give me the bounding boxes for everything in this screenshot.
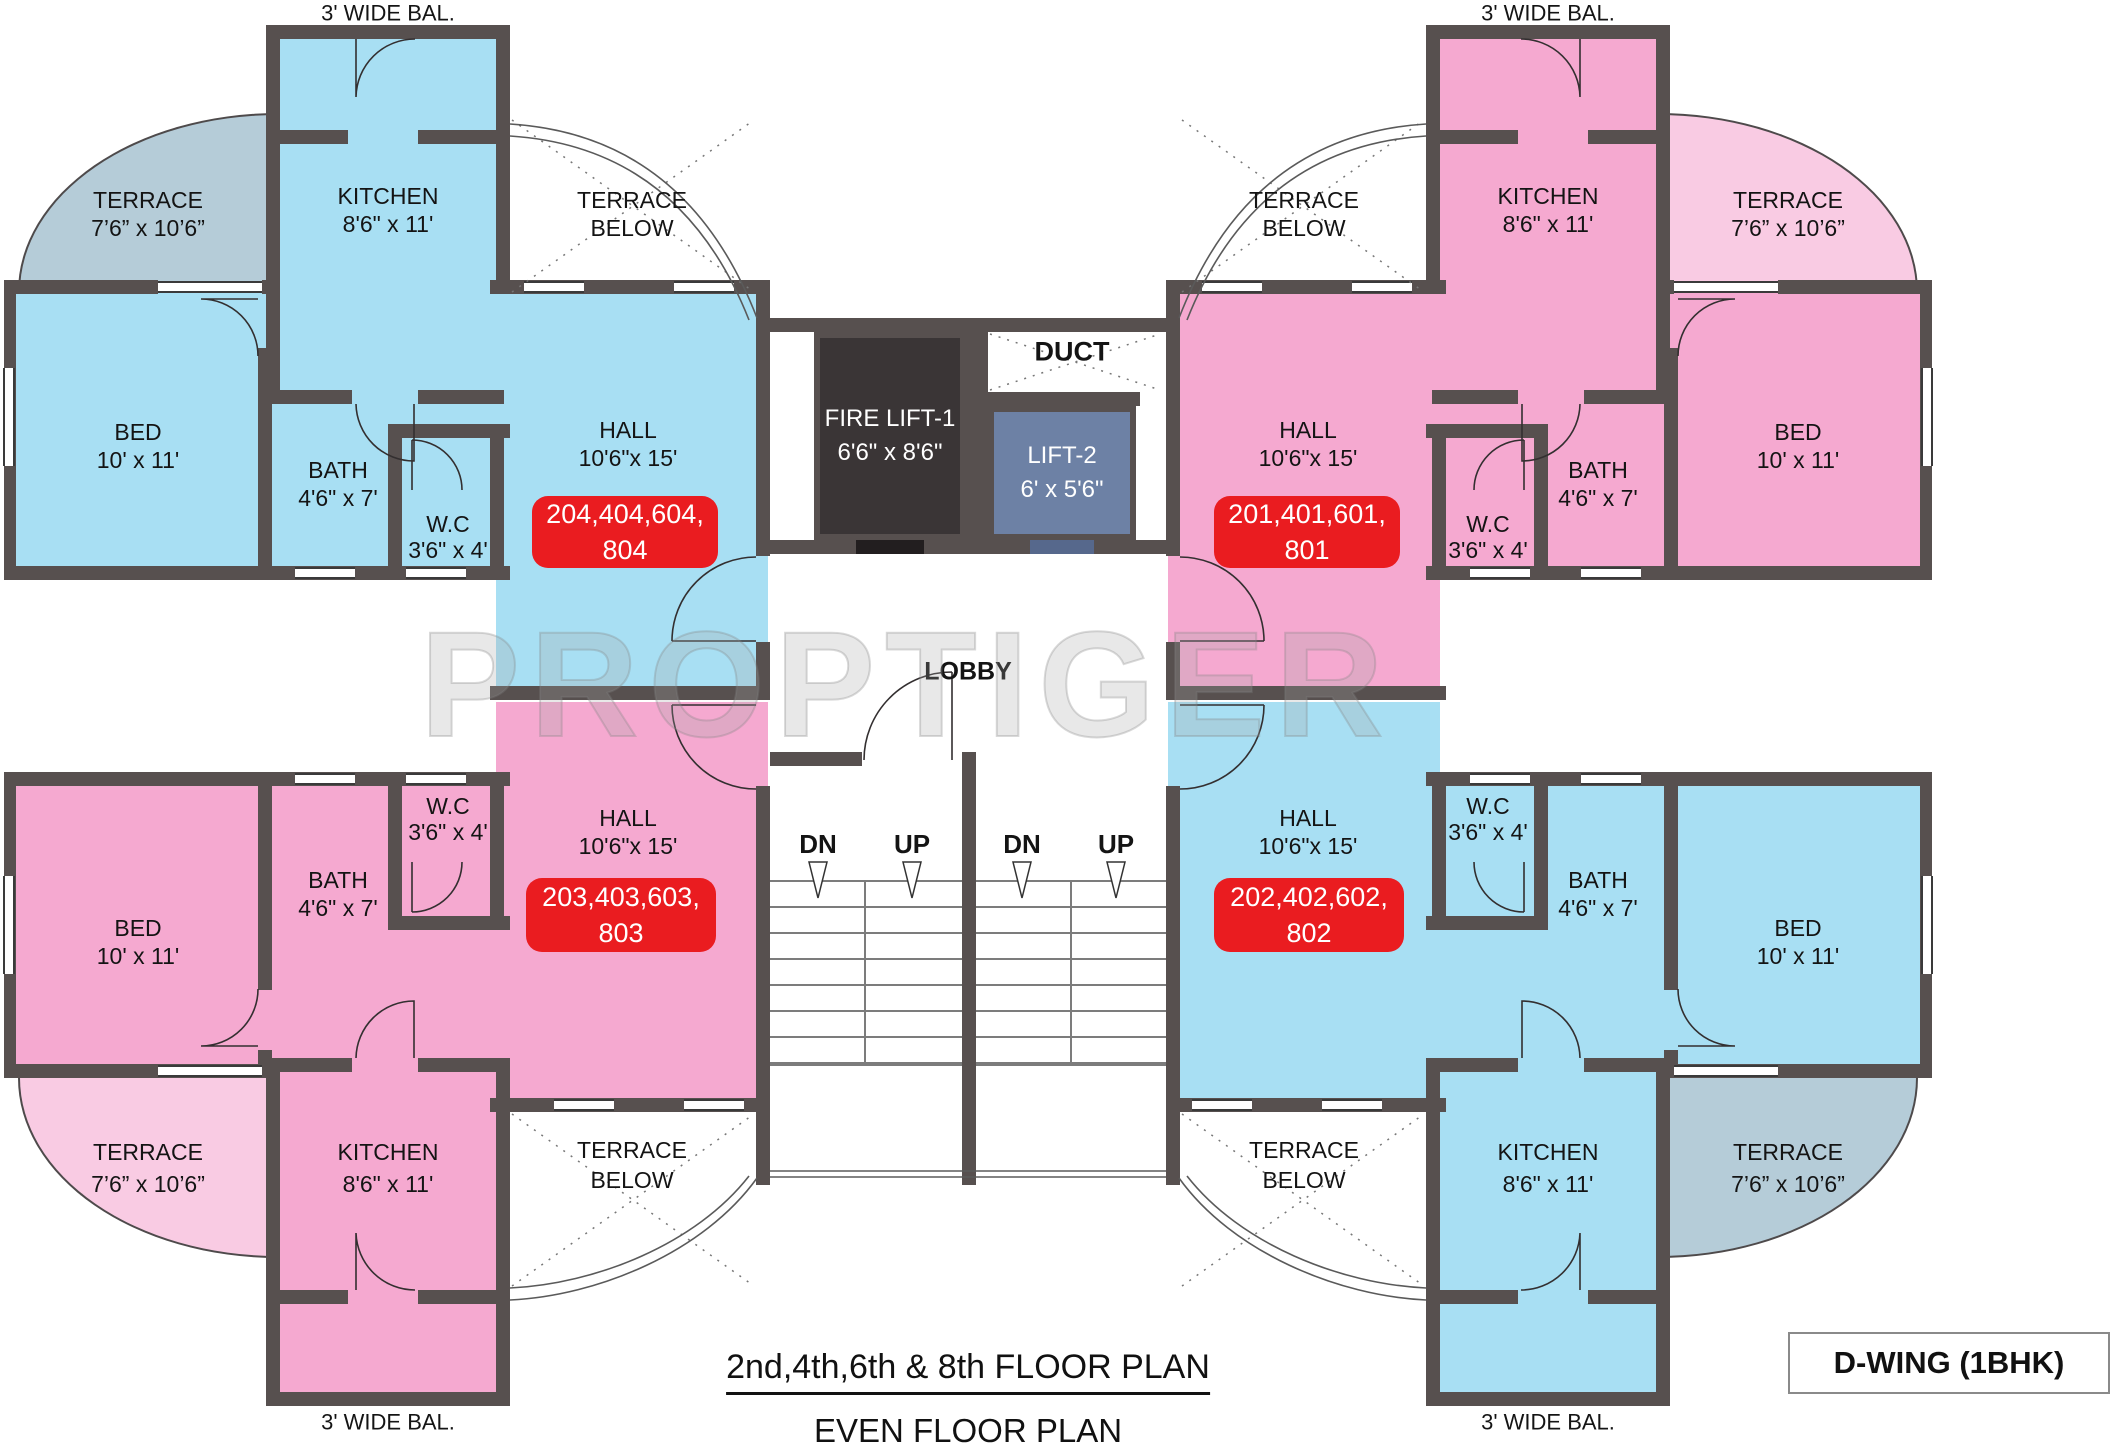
room-dim-bed: 10' x 11'	[97, 447, 180, 473]
window	[1322, 1099, 1382, 1111]
room-label-bed: BED	[114, 419, 161, 445]
unit-badge-line: 803	[598, 915, 643, 951]
window	[1470, 773, 1530, 785]
wall	[258, 786, 272, 990]
wall	[1426, 1290, 1518, 1304]
wall	[962, 752, 976, 1185]
room-label-hall: HALL	[599, 805, 657, 831]
room-dim-terrace: 7’6” x 10’6”	[91, 1171, 205, 1197]
fire-lift-door	[856, 540, 924, 554]
even-floor-plan-caption: EVEN FLOOR PLAN	[814, 1412, 1122, 1448]
room-dim-bath: 4'6" x 7'	[1558, 485, 1638, 511]
window	[3, 876, 15, 974]
room-label-kitchen: KITCHEN	[338, 183, 439, 209]
lobby-label: LOBBY	[924, 658, 1012, 687]
stair-up-label: UP	[1098, 830, 1134, 860]
room-label-terrace: TERRACE	[1733, 1139, 1843, 1165]
room-label-terrace: TERRACE	[93, 1139, 203, 1165]
room-label-hall: HALL	[599, 417, 657, 443]
room-dim-bed: 10' x 11'	[1757, 943, 1840, 969]
unit-badge-line: 804	[602, 532, 647, 568]
window	[1470, 567, 1530, 579]
wall	[266, 1392, 510, 1406]
window	[158, 1065, 262, 1077]
wall	[258, 348, 272, 570]
room-dim-terrace: 7’6” x 10’6”	[91, 215, 205, 241]
unit-201-hall-fill	[1168, 282, 1440, 698]
terrace-below-label: TERRACE	[577, 187, 687, 213]
room-dim-kitchen: 8'6" x 11'	[343, 211, 434, 237]
window	[1192, 1099, 1252, 1111]
wall	[1778, 280, 1932, 294]
balcony-label: 3' WIDE BAL.	[321, 1409, 455, 1434]
wall	[1584, 1058, 1664, 1072]
stair-up-label: UP	[894, 830, 930, 860]
balcony-label: 3' WIDE BAL.	[1481, 0, 1615, 25]
stair-divider-line	[864, 880, 866, 1064]
room-label-bath: BATH	[308, 457, 368, 483]
wall	[1432, 424, 1446, 570]
room-dim-wc: 3'6" x 4'	[408, 537, 488, 563]
wall	[1656, 25, 1670, 402]
wall	[266, 25, 280, 402]
terrace-below-label: TERRACE	[577, 1137, 687, 1163]
window	[1352, 281, 1412, 293]
room-dim-bed: 10' x 11'	[97, 943, 180, 969]
balcony-label: 3' WIDE BAL.	[321, 0, 455, 25]
wall	[1426, 25, 1670, 39]
window	[1581, 567, 1641, 579]
terrace-below-label: BELOW	[1262, 215, 1345, 241]
window	[1921, 876, 1933, 974]
wall	[1584, 390, 1664, 404]
wall	[266, 1290, 348, 1304]
window	[295, 567, 355, 579]
wall	[496, 25, 510, 294]
wall	[266, 1058, 280, 1406]
unit-badge-line: 201,401,601,	[1228, 496, 1386, 532]
duct-label: DUCT	[1035, 336, 1110, 367]
lift-2: LIFT-2 6' x 5'6"	[988, 406, 1136, 540]
room-dim-terrace: 7’6” x 10’6”	[1731, 1171, 1845, 1197]
room-label-hall: HALL	[1279, 805, 1337, 831]
wall	[4, 280, 158, 294]
room-label-wc: W.C	[426, 793, 469, 819]
unit-badge-line: 802	[1286, 915, 1331, 951]
unit-202-terrace-fill	[1658, 1078, 1918, 1258]
room-label-bath: BATH	[1568, 867, 1628, 893]
wall	[770, 752, 862, 766]
wall	[272, 1058, 352, 1072]
fire-lift-1-name: FIRE LIFT-1	[825, 402, 956, 436]
terrace-below-label: TERRACE	[1249, 1137, 1359, 1163]
wall	[756, 642, 770, 700]
unit-badge-203: 203,403,603, 803	[526, 878, 716, 952]
wall	[490, 786, 504, 930]
room-label-bed: BED	[1774, 419, 1821, 445]
wall	[1166, 786, 1180, 1185]
wall	[1432, 390, 1518, 404]
terrace-below-label: TERRACE	[1249, 187, 1359, 213]
window	[406, 567, 466, 579]
lift-2-dim: 6' x 5'6"	[1020, 473, 1103, 507]
room-label-kitchen: KITCHEN	[1498, 1139, 1599, 1165]
room-dim-bed: 10' x 11'	[1757, 447, 1840, 473]
wall	[418, 390, 504, 404]
stair-treads-left	[770, 880, 962, 1066]
room-dim-wc: 3'6" x 4'	[1448, 819, 1528, 845]
room-label-wc: W.C	[1466, 511, 1509, 537]
room-dim-hall: 10'6"x 15'	[579, 833, 678, 859]
lift-2-name: LIFT-2	[1027, 439, 1096, 473]
room-label-hall: HALL	[1279, 417, 1337, 443]
wall	[496, 1064, 510, 1406]
room-dim-kitchen: 8'6" x 11'	[343, 1171, 434, 1197]
unit-badge-line: 203,403,603,	[542, 879, 700, 915]
unit-202-kitchen-column-fill	[1426, 772, 1670, 1400]
floor-plan-canvas: FIRE LIFT-1 6'6" x 8'6" LIFT-2 6' x 5'6"	[0, 0, 2113, 1448]
unit-204-hall-fill	[496, 282, 768, 698]
wall	[1166, 642, 1180, 700]
wall	[1426, 1064, 1440, 1406]
lift-2-door	[1030, 540, 1094, 554]
room-label-wc: W.C	[426, 511, 469, 537]
wall	[756, 280, 770, 556]
wall	[1588, 1290, 1670, 1304]
room-label-terrace: TERRACE	[1733, 187, 1843, 213]
unit-badge-204: 204,404,604, 804	[532, 496, 718, 568]
room-dim-terrace: 7’6” x 10’6”	[1731, 215, 1845, 241]
room-dim-wc: 3'6" x 4'	[408, 819, 488, 845]
window	[406, 773, 466, 785]
wall	[988, 392, 1140, 406]
room-dim-bath: 4'6" x 7'	[298, 485, 378, 511]
unit-badge-line: 202,402,602,	[1230, 879, 1388, 915]
wall	[1166, 280, 1180, 556]
room-label-bath: BATH	[308, 867, 368, 893]
wall	[1426, 1392, 1670, 1406]
window	[674, 281, 734, 293]
wall	[1656, 280, 1674, 294]
wall	[1656, 1058, 1670, 1406]
wall	[966, 332, 988, 554]
terrace-below-label: BELOW	[590, 1167, 673, 1193]
balcony-label: 3' WIDE BAL.	[1481, 1409, 1615, 1434]
unit-badge-201: 201,401,601, 801	[1214, 496, 1400, 568]
wall	[1426, 25, 1440, 294]
room-label-bed: BED	[1774, 915, 1821, 941]
window	[1921, 368, 1933, 466]
wing-label: D-WING (1BHK)	[1834, 1345, 2065, 1381]
stair-dn-label: DN	[1003, 830, 1041, 860]
window	[684, 1099, 744, 1111]
wall	[490, 424, 504, 570]
room-dim-wc: 3'6" x 4'	[1448, 537, 1528, 563]
room-dim-hall: 10'6"x 15'	[1259, 833, 1358, 859]
window	[524, 281, 584, 293]
room-label-kitchen: KITCHEN	[1498, 183, 1599, 209]
wall	[770, 318, 1166, 332]
wall	[1168, 686, 1446, 700]
floor-plan-caption: 2nd,4th,6th & 8th FLOOR PLAN	[726, 1348, 1210, 1395]
unit-badge-202: 202,402,602, 802	[1214, 878, 1404, 952]
window	[3, 368, 15, 466]
fire-lift-1: FIRE LIFT-1 6'6" x 8'6"	[814, 332, 966, 540]
wall	[262, 280, 280, 294]
wall	[1432, 786, 1446, 930]
unit-badge-line: 801	[1284, 532, 1329, 568]
window	[554, 1099, 614, 1111]
room-label-bed: BED	[114, 915, 161, 941]
room-dim-kitchen: 8'6" x 11'	[1503, 211, 1594, 237]
wall	[1664, 786, 1678, 990]
wall	[266, 25, 510, 39]
terrace-below-label: BELOW	[1262, 1167, 1345, 1193]
wall	[1664, 348, 1678, 570]
wall	[418, 1290, 510, 1304]
room-label-terrace: TERRACE	[93, 187, 203, 213]
room-dim-hall: 10'6"x 15'	[1259, 445, 1358, 471]
room-label-bath: BATH	[1568, 457, 1628, 483]
window	[1674, 281, 1778, 293]
room-dim-kitchen: 8'6" x 11'	[1503, 1171, 1594, 1197]
fire-lift-1-dim: 6'6" x 8'6"	[838, 436, 943, 470]
window	[295, 773, 355, 785]
window	[1202, 281, 1262, 293]
wall	[490, 686, 768, 700]
wall	[1534, 786, 1548, 930]
wall	[388, 438, 402, 570]
wall	[1534, 438, 1548, 570]
window	[1674, 1065, 1778, 1077]
room-dim-bath: 4'6" x 7'	[1558, 895, 1638, 921]
unit-badge-line: 204,404,604,	[546, 496, 704, 532]
wall	[272, 390, 352, 404]
room-dim-hall: 10'6"x 15'	[579, 445, 678, 471]
unit-203-terrace-fill	[18, 1078, 278, 1258]
window	[1581, 773, 1641, 785]
wing-label-box: D-WING (1BHK)	[1788, 1332, 2110, 1394]
room-label-kitchen: KITCHEN	[338, 1139, 439, 1165]
terrace-below-label: BELOW	[590, 215, 673, 241]
window	[158, 281, 262, 293]
room-label-wc: W.C	[1466, 793, 1509, 819]
stair-divider-line	[1070, 880, 1072, 1064]
room-dim-bath: 4'6" x 7'	[298, 895, 378, 921]
wall	[388, 786, 402, 930]
wall	[756, 786, 770, 1185]
stair-dn-label: DN	[799, 830, 837, 860]
